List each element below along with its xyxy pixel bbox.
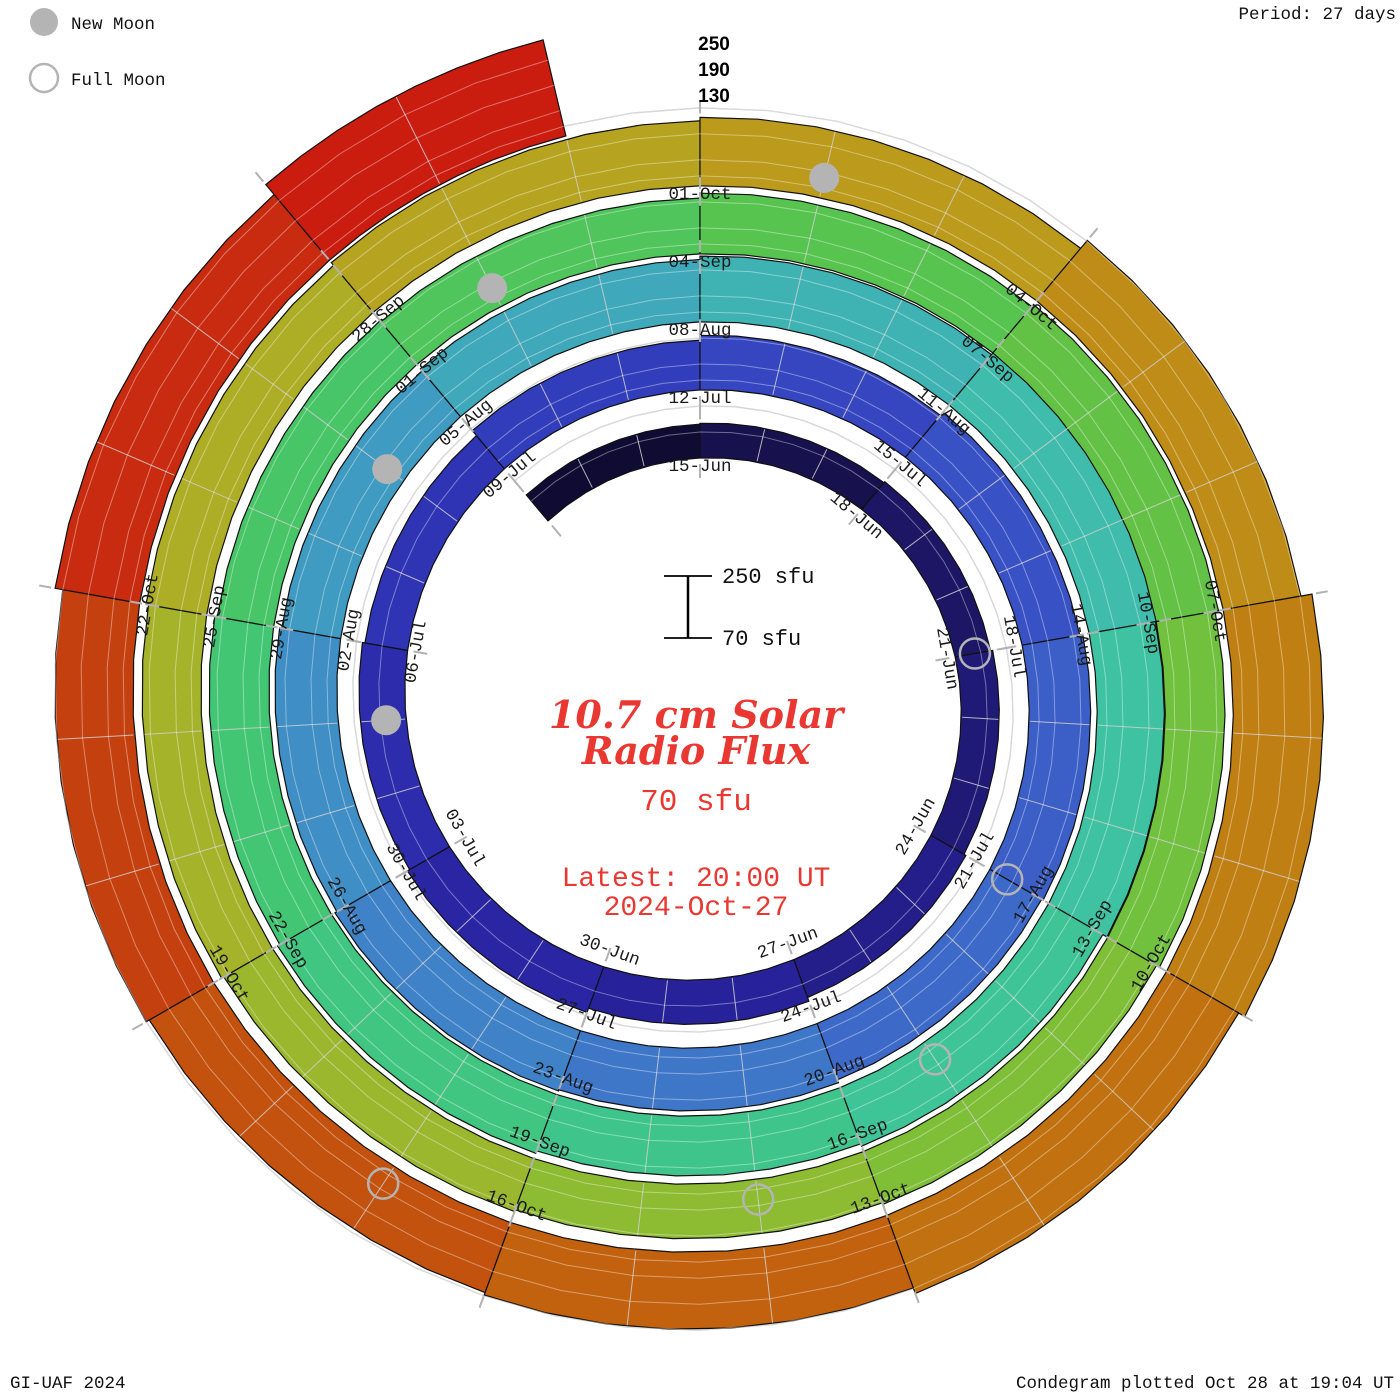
new-moon-marker-02-Oct [809,163,839,193]
new-moon-marker-02-Sep [477,273,507,303]
top-tick [256,172,264,181]
top-tick [1090,228,1098,237]
moon-legend: New Moon Full Moon [30,8,166,92]
radial-scale-130: 130 [698,86,730,107]
latest-date-label: 2024-Oct-27 [604,893,789,924]
top-tick [1242,1015,1252,1021]
top-tick [39,586,51,588]
top-tick [480,1296,484,1307]
radial-scale-250: 250 [698,34,730,55]
flux-segment-24-Jul [559,1024,839,1111]
baseline-value-label: 70 sfu [640,785,752,820]
date-label-15-Jun: 15-Jun [668,457,731,477]
chart-title-line2: Radio Flux [581,728,812,773]
plotted-label: Condegram plotted Oct 28 at 19:04 UT [1016,1374,1394,1394]
new-moon-marker-04-Aug [372,454,402,484]
top-tick [1316,591,1328,593]
period-label: Period: 27 days [1238,5,1396,25]
full-moon-legend-icon [30,64,58,92]
radial-scale-190: 190 [698,60,730,81]
date-label-08-Aug: 08-Aug [668,321,731,341]
radial-scale: 250 190 130 [698,34,730,107]
full-moon-legend-label: Full Moon [71,71,166,91]
date-label-04-Sep: 04-Sep [668,253,731,273]
new-moon-legend-label: New Moon [71,15,155,35]
sample-scale-max-label: 250 sfu [722,565,814,590]
date-label-01-Oct: 01-Oct [668,185,731,205]
new-moon-marker-05-Jul [371,705,401,735]
sample-scale-bar [664,576,712,638]
top-tick [516,483,524,492]
latest-time-label: Latest: 20:00 UT [562,864,831,895]
date-label-12-Jul: 12-Jul [668,389,731,409]
center-annotations: 10.7 cm Solar Radio Flux 70 sfu Latest: … [549,692,846,924]
condegram-plot: 15-Jun18-Jun21-Jun24-Jun27-Jun30-Jun03-J… [0,0,1400,1400]
base-tick [552,525,561,536]
top-tick [132,1024,142,1030]
spiral-chart: 15-Jun18-Jun21-Jun24-Jun27-Jun30-Jun03-J… [39,40,1327,1330]
flux-segment-27-Jun [589,960,809,1025]
new-moon-legend-icon [30,8,58,36]
condegram-svg: 15-Jun18-Jun21-Jun24-Jun27-Jun30-Jun03-J… [0,0,1400,1400]
sample-scale-min-label: 70 sfu [722,627,801,652]
credit-label: GI-UAF 2024 [10,1374,126,1394]
